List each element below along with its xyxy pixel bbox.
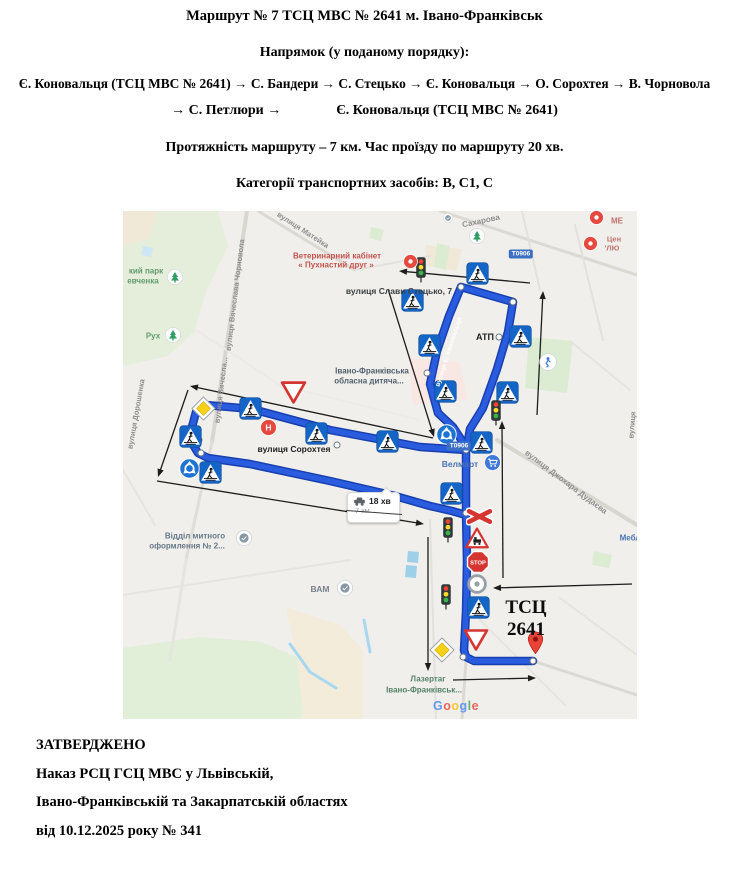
pedestrian-crossing-icon [509,325,532,348]
poi-label: Івано-Франківськ... [386,686,462,695]
route-length-line: Протяжність маршруту – 7 км. Час проїзду… [0,140,729,156]
red-poi-icon [403,254,418,269]
google-attribution-letter: G [433,699,443,713]
pedestrian-crossing-icon [466,262,489,285]
route-time-bubble[interactable]: 18 хв 7 км [347,492,400,523]
road-shield: Т0906 [447,442,471,451]
approval-line: ЗАТВЕРДЖЕНО [36,731,348,760]
approval-line: Наказ РСЦ ГСЦ МВС у Львівській, [36,760,348,789]
destination-label: ТСЦ 2641 [480,597,572,641]
end-restrictions-ring-icon [467,574,487,594]
pedestrian-crossing-icon [376,430,399,453]
car-icon [353,497,366,506]
priority-road-icon [191,396,216,421]
poi-label: Відділ митного [165,532,225,541]
poi-label: Івано-Франківська [335,367,409,376]
road-shield: Т0906 [509,250,533,259]
route-waypoint-dot [496,334,502,340]
poi-label: АТП [476,332,494,342]
tree-poi-icon [165,327,181,343]
yield-icon [280,379,307,406]
street-line [196,330,280,385]
route-map[interactable]: STOPНкий паркевченкаРухВетеринарний кабі… [123,211,637,719]
annotation-arrow-line [502,426,503,578]
route-waypoint-dot [510,299,516,305]
map-area [123,637,302,719]
approval-line: від 10.12.2025 року № 341 [36,817,348,846]
pedestrian-crossing-icon [179,425,202,448]
annotation-arrow-head [429,428,435,437]
poi-label: оформлення № 2... [149,542,225,551]
google-attribution-letter: g [459,699,467,713]
roundabout-icon [179,458,200,479]
pedestrian-crossing-icon [440,482,463,505]
annotation-arrow-head [399,269,407,275]
park-label: кий парк [129,267,163,276]
park-label: евченка [127,277,158,286]
map-area [369,227,384,241]
annotation-arrow-head [425,663,431,671]
poi-label: ВАМ [311,584,330,594]
route-waypoint-dot [198,450,204,456]
route-description-line2-left: → С. Петлюри → [171,103,281,119]
pedestrian-crossing-icon [418,334,441,357]
google-attribution-letter: e [472,699,479,713]
priority-road-icon [429,637,455,663]
railway-warning-icon [465,526,489,550]
street-line [123,470,155,525]
annotation-arrow-head [493,585,501,591]
street-line [440,211,560,250]
route-waypoint-dot [460,654,466,660]
route-waypoint-dot [424,370,430,376]
annotation-arrow-head [539,291,545,299]
red-poi-icon [589,211,604,225]
vehicle-categories-line: Категорії транспортних засобів: В, С1, С [0,176,729,192]
map-area [405,565,417,578]
traffic-light-icon [490,400,502,426]
traffic-light-icon [440,584,452,610]
gray-poi-icon [337,580,353,596]
route-description-line2: → С. Петлюри → Є. Коновальця (ТСЦ МВС № … [0,103,729,119]
tree-poi-icon [469,228,485,244]
poi-label: Велмарт [442,459,478,469]
route-waypoint-dot [458,284,464,290]
annotation-arrow-head [190,385,198,391]
map-area [407,551,419,563]
tree-poi-icon [167,269,183,285]
poi-label: Цен [607,235,621,244]
map-area [592,551,612,568]
traffic-light-icon [442,517,454,543]
svg-text:STOP: STOP [470,560,486,566]
destination-label-line2: 2641 [480,619,572,641]
poi-label: Ветеринарний кабінет [293,252,381,261]
direction-heading: Напрямок (у поданому порядку): [0,45,729,61]
poi-label: обласна дитяча... [334,377,403,386]
svg-text:Н: Н [265,422,271,432]
pedestrian-crossing-icon [305,422,328,445]
route-path [192,405,466,515]
route-description-line1: Є. Коновальця (ТСЦ МВС № 2641) → С. Банд… [0,76,729,92]
sport-poi-icon [539,353,557,371]
park-label: Рух [146,332,160,341]
shopping-cart-poi-icon [484,454,501,471]
annotation-arrow-head [158,468,164,477]
poi-label: МЕ [611,217,623,226]
map-area [141,246,153,257]
pedestrian-crossing-icon [199,461,222,484]
approval-block: ЗАТВЕРДЖЕНО Наказ РСЦ ГСЦ МВС у Львівськ… [36,731,348,845]
pedestrian-crossing-icon [470,431,493,454]
approval-line: Івано-Франківській та Закарпатській обла… [36,788,348,817]
red-poi-icon [583,236,598,251]
street-line [364,620,370,652]
street-line [570,341,630,390]
route-description-line2-right: Є. Коновальця (ТСЦ МВС № 2641) [336,103,558,119]
stop-icon: STOP [466,550,490,574]
poi-label: Лазертаг [410,675,445,684]
route-waypoint-dot [334,442,340,448]
street-label: вулиця Сорохтея [258,444,331,454]
poi-label: Мебл [620,534,637,543]
gray-poi-icon [236,530,252,546]
poi-label: 'ЛЮ [605,244,620,253]
annotation-arrow-line [498,584,632,588]
poi-label: « Пухнастий друг » [298,261,373,270]
street-line [560,250,637,275]
destination-label-line1: ТСЦ [480,597,572,619]
annotation-arrow-head [416,520,424,526]
address-label: вулиця Слави Стецько, 7 [346,286,452,296]
hospital-poi-icon: Н [260,419,277,436]
street-label: вулиця [626,411,637,439]
gray-poi-icon [443,211,453,220]
route-waypoint-dot [530,658,536,664]
page-title: Маршрут № 7 ТСЦ МВС № 2641 м. Івано-Фран… [0,8,729,25]
pedestrian-crossing-icon [239,397,262,420]
google-attribution: Google [421,699,491,713]
